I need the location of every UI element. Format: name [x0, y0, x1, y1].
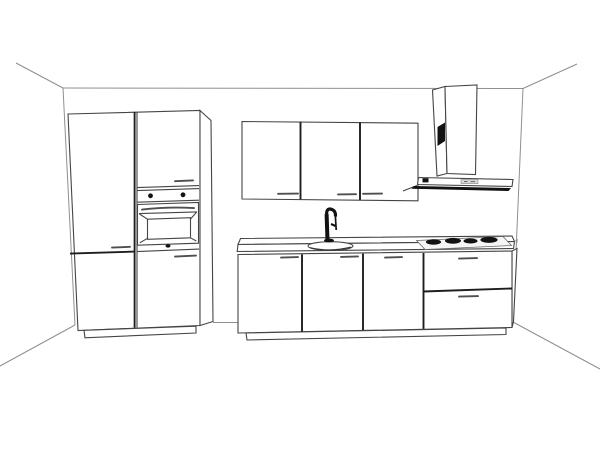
wall-cabinets[interactable]: [242, 122, 418, 201]
upper-door-handle[interactable]: [175, 180, 193, 181]
kitchen-drawing: [0, 0, 600, 450]
hood-chimney-front[interactable]: [445, 85, 477, 175]
base-run-front[interactable]: [238, 251, 512, 333]
wall-cabinet-body[interactable]: [242, 122, 418, 201]
oven-knob-right-icon[interactable]: [181, 192, 186, 197]
oven-knob-left-icon[interactable]: [148, 193, 153, 198]
base-door-3-handle[interactable]: [385, 257, 402, 258]
canopy-light-icon: [423, 178, 429, 182]
floor-edge-right: [513, 322, 600, 369]
base-door-2-handle[interactable]: [341, 256, 358, 257]
faucet-lever[interactable]: [331, 224, 336, 226]
base-door-1-handle[interactable]: [281, 257, 298, 258]
base-cabinet-run[interactable]: [238, 249, 517, 341]
faucet-spout-tip: [335, 217, 336, 231]
burner-1-icon: [426, 239, 441, 244]
hood-control-panel[interactable]: [461, 180, 478, 184]
kitchen-3d-view: [0, 0, 600, 450]
tall-cabinet-side: [200, 111, 213, 326]
faucet-stem: [327, 214, 328, 241]
burner-4-icon: [480, 237, 497, 243]
tall-door-handle[interactable]: [112, 247, 130, 248]
extractor-hood[interactable]: [433, 85, 478, 176]
canopy-underside: [412, 186, 512, 191]
ceiling-edge-left: [16, 63, 63, 88]
burner-3-icon: [464, 239, 478, 244]
lower-door-handle[interactable]: [175, 256, 196, 257]
hood-canopy[interactable]: [403, 178, 513, 192]
base-run-side: [512, 249, 517, 328]
ceiling-edge-right: [523, 64, 577, 89]
drawer-1-handle[interactable]: [459, 258, 477, 259]
floor-edge-left: [0, 325, 75, 366]
oven-vent-knob-icon: [166, 244, 171, 247]
sink-area[interactable]: [308, 209, 353, 250]
drawer-2-handle[interactable]: [459, 296, 478, 297]
tall-cabinet[interactable]: [68, 111, 213, 338]
burner-2-icon: [445, 238, 461, 244]
